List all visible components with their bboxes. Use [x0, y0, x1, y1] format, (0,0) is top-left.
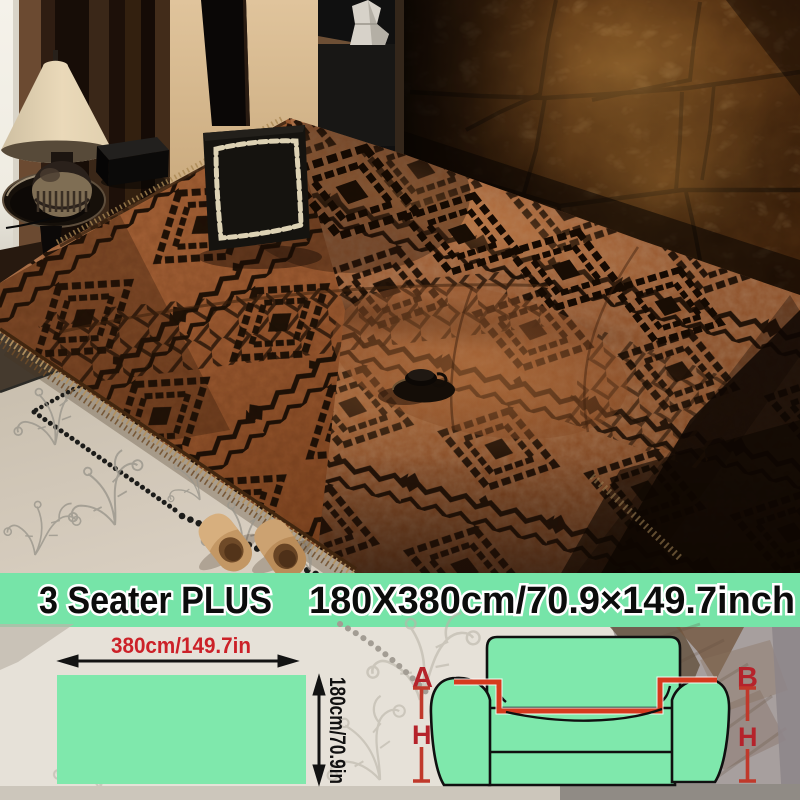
svg-text:H: H — [738, 722, 758, 752]
svg-text:180cm/70.9in: 180cm/70.9in — [325, 677, 350, 784]
svg-text:180X380cm/70.9×149.7inch: 180X380cm/70.9×149.7inch — [309, 580, 795, 622]
svg-text:380cm/149.7in: 380cm/149.7in — [111, 633, 251, 658]
svg-text:3 Seater PLUS: 3 Seater PLUS — [39, 580, 272, 622]
svg-text:H: H — [412, 720, 432, 750]
